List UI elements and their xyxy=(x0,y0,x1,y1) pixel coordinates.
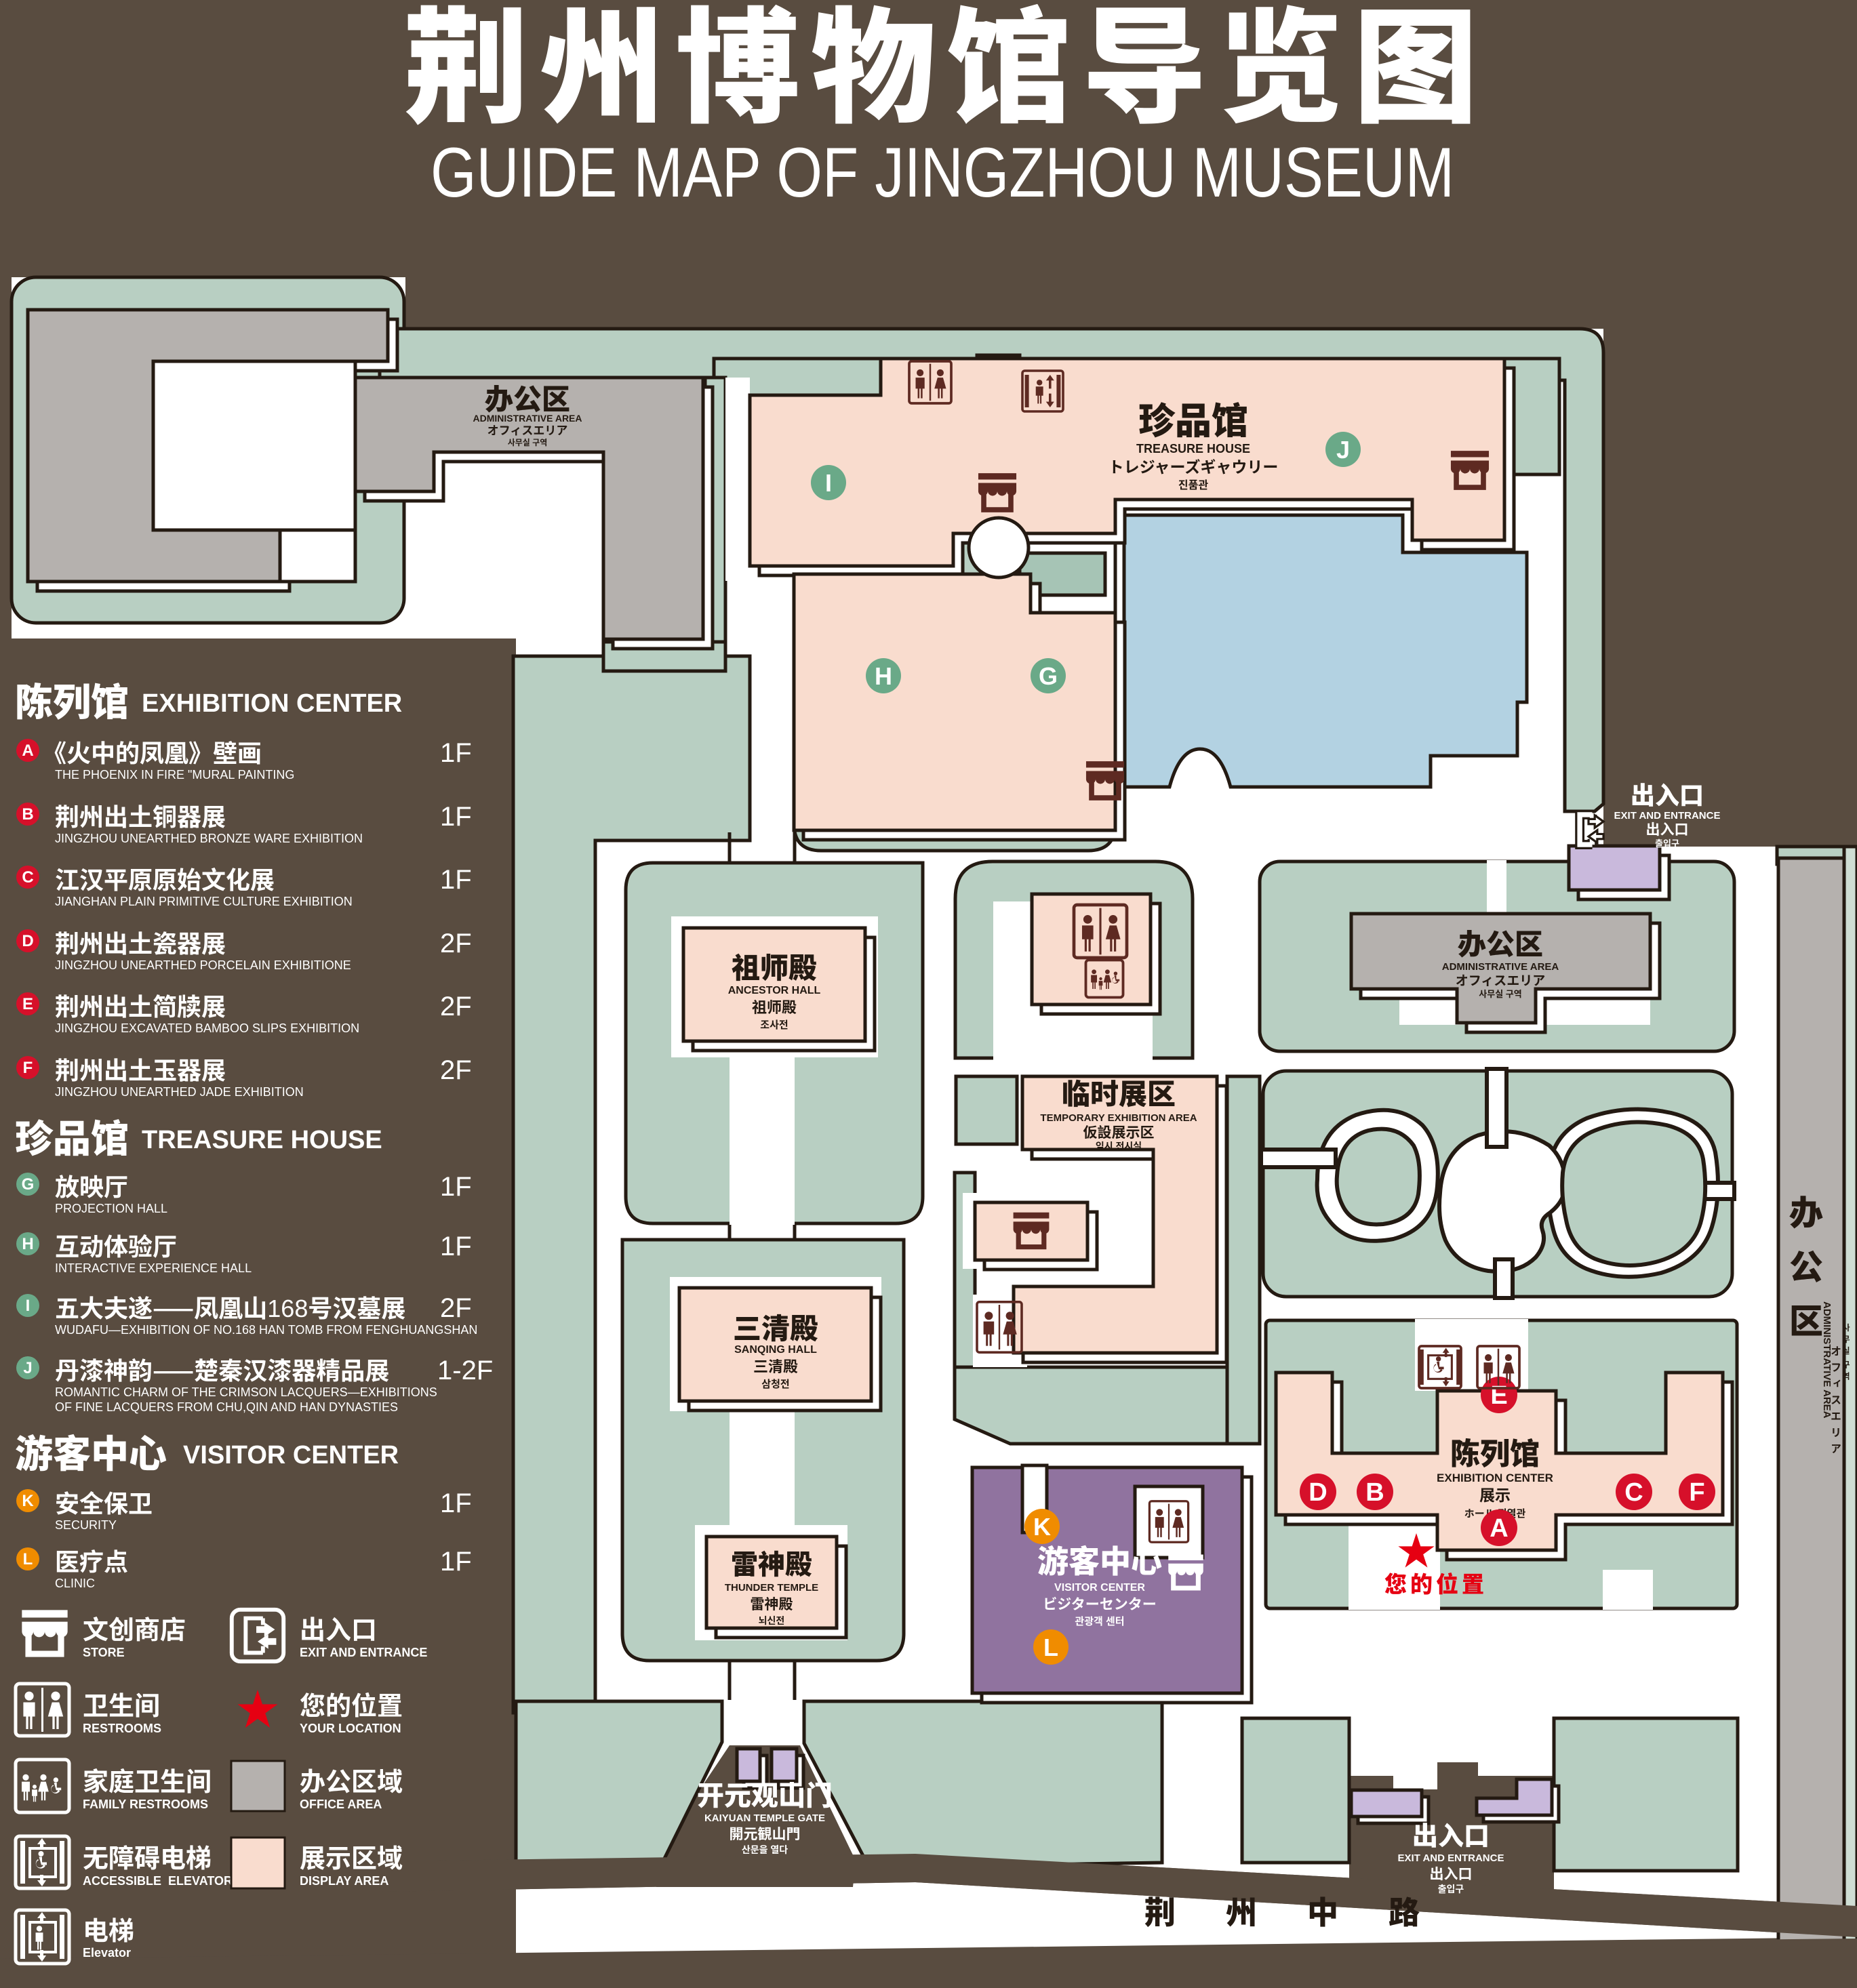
svg-text:办公区: 办公区 xyxy=(1458,922,1543,963)
svg-text:VISITOR CENTER: VISITOR CENTER xyxy=(1054,1582,1145,1594)
svg-text:卫生间: 卫生间 xyxy=(83,1685,160,1722)
svg-text:荆州出土瓷器展: 荆州出土瓷器展 xyxy=(55,925,226,960)
svg-text:SANQING HALL: SANQING HALL xyxy=(734,1344,817,1356)
svg-text:ビジターセンター: ビジターセンター xyxy=(1043,1594,1157,1614)
svg-text:陈列馆: 陈列馆 xyxy=(1450,1429,1540,1473)
svg-text:RESTROOMS: RESTROOMS xyxy=(83,1722,161,1735)
svg-text:1F: 1F xyxy=(440,738,472,768)
svg-text:G: G xyxy=(1039,662,1058,690)
svg-text:您的位置: 您的位置 xyxy=(300,1685,403,1722)
svg-text:C: C xyxy=(1624,1478,1643,1507)
svg-text:2F: 2F xyxy=(440,992,472,1021)
svg-text:GUIDE MAP OF JINGZHOU MUSEUM: GUIDE MAP OF JINGZHOU MUSEUM xyxy=(431,134,1454,212)
svg-text:A: A xyxy=(1490,1514,1508,1543)
svg-text:《火中的凤凰》壁画: 《火中的凤凰》壁画 xyxy=(42,734,262,769)
svg-text:조사전: 조사전 xyxy=(760,1017,788,1032)
svg-text:1F: 1F xyxy=(440,1232,472,1261)
svg-text:雷神殿: 雷神殿 xyxy=(731,1543,812,1582)
svg-text:游客中心: 游客中心 xyxy=(1037,1537,1162,1582)
svg-text:A: A xyxy=(22,742,33,760)
svg-text:INTERACTIVE EXPERIENCE HALL: INTERACTIVE EXPERIENCE HALL xyxy=(55,1261,252,1275)
svg-text:E: E xyxy=(22,995,33,1013)
svg-text:사무실 구역: 사무실 구역 xyxy=(1479,987,1521,1000)
svg-text:丹漆神韵——楚秦汉漆器精品展: 丹漆神韵——楚秦汉漆器精品展 xyxy=(55,1352,389,1387)
svg-text:B: B xyxy=(22,805,33,824)
svg-text:1F: 1F xyxy=(440,1547,472,1577)
svg-text:雷神殿: 雷神殿 xyxy=(751,1594,793,1614)
svg-text:FAMILY RESTROOMS: FAMILY RESTROOMS xyxy=(83,1798,208,1811)
svg-text:B: B xyxy=(1365,1478,1384,1507)
svg-text:THUNDER TEMPLE: THUNDER TEMPLE xyxy=(725,1582,818,1594)
svg-text:G: G xyxy=(22,1175,35,1194)
svg-text:开元观山门: 开元观山门 xyxy=(697,1774,833,1813)
svg-text:L: L xyxy=(1043,1634,1058,1661)
svg-text:荆州出土铜器展: 荆州出土铜器展 xyxy=(55,798,226,833)
svg-text:1F: 1F xyxy=(440,865,472,895)
svg-text:五大夫遂——凤凰山168号汉墓展: 五大夫遂——凤凰山168号汉墓展 xyxy=(55,1289,405,1324)
svg-text:WUDAFU—EXHIBITION OF NO.168 HA: WUDAFU—EXHIBITION OF NO.168 HAN TOMB FRO… xyxy=(55,1323,477,1337)
svg-text:Elevator: Elevator xyxy=(83,1946,131,1960)
svg-text:STORE: STORE xyxy=(83,1646,125,1659)
svg-text:TREASURE HOUSE: TREASURE HOUSE xyxy=(142,1126,382,1154)
svg-text:珍品馆: 珍品馆 xyxy=(15,1109,129,1164)
svg-text:VISITOR CENTER: VISITOR CENTER xyxy=(183,1441,399,1469)
svg-text:荆州中路: 荆州中路 xyxy=(1144,1888,1470,1933)
svg-text:JINGZHOU UNEARTHED JADE EXHIBI: JINGZHOU UNEARTHED JADE EXHIBITION xyxy=(55,1085,304,1099)
svg-text:EXIT AND ENTRANCE: EXIT AND ENTRANCE xyxy=(1398,1852,1504,1864)
svg-text:EXHIBITION CENTER: EXHIBITION CENTER xyxy=(142,689,402,718)
svg-text:文创商店: 文创商店 xyxy=(83,1609,186,1646)
svg-text:家庭卫生间: 家庭卫生间 xyxy=(83,1761,212,1798)
svg-text:삼청전: 삼청전 xyxy=(761,1377,789,1391)
svg-text:JINGZHOU UNEARTHED BRONZE WARE: JINGZHOU UNEARTHED BRONZE WARE EXHIBITIO… xyxy=(55,832,363,845)
svg-text:K: K xyxy=(1033,1513,1051,1541)
svg-text:珍品馆: 珍品馆 xyxy=(1138,391,1248,445)
svg-text:D: D xyxy=(1309,1478,1327,1507)
svg-text:ROMANTIC CHARM OF THE CRIMSON: ROMANTIC CHARM OF THE CRIMSON LACQUERS—E… xyxy=(55,1385,437,1399)
svg-text:J: J xyxy=(1336,436,1350,464)
svg-text:CLINIC: CLINIC xyxy=(55,1577,95,1590)
svg-text:1F: 1F xyxy=(440,1172,472,1202)
svg-text:トレジャーズギャウリー: トレジャーズギャウリー xyxy=(1109,454,1279,477)
svg-text:ACCESSIBLE ELEVATOR: ACCESSIBLE ELEVATOR xyxy=(83,1874,233,1888)
svg-text:사무실 구역: 사무실 구역 xyxy=(508,437,548,448)
svg-text:F: F xyxy=(23,1059,33,1077)
svg-text:관광객 센터: 관광객 센터 xyxy=(1075,1614,1124,1628)
svg-text:出入口: 出入口 xyxy=(300,1609,377,1646)
svg-text:祖师殿: 祖师殿 xyxy=(732,946,817,987)
svg-text:办公区域: 办公区域 xyxy=(300,1761,403,1798)
svg-text:陈列馆: 陈列馆 xyxy=(15,672,129,727)
svg-text:游客中心: 游客中心 xyxy=(15,1424,167,1479)
svg-text:OFFICE AREA: OFFICE AREA xyxy=(300,1798,382,1811)
svg-text:H: H xyxy=(875,662,892,690)
svg-text:I: I xyxy=(825,469,832,497)
svg-text:뇌신전: 뇌신전 xyxy=(759,1614,785,1627)
svg-text:荆州出土简牍展: 荆州出土简牍展 xyxy=(55,988,226,1023)
svg-text:您的位置: 您的位置 xyxy=(1384,1566,1487,1599)
svg-text:D: D xyxy=(22,932,33,950)
svg-text:办公区: 办公区 xyxy=(485,377,570,418)
svg-text:2F: 2F xyxy=(440,929,472,958)
svg-text:オフィスエリア: オフィスエリア xyxy=(1456,971,1546,989)
svg-text:YOUR LOCATION: YOUR LOCATION xyxy=(300,1722,401,1735)
svg-text:放映厅: 放映厅 xyxy=(55,1168,128,1203)
svg-text:THE PHOENIX IN FIRE "MURAL PAI: THE PHOENIX IN FIRE "MURAL PAINTING xyxy=(55,768,294,782)
svg-text:TREASURE HOUSE: TREASURE HOUSE xyxy=(1136,442,1250,455)
svg-text:出入口: 出入口 xyxy=(1430,1863,1473,1884)
svg-text:DISPLAY AREA: DISPLAY AREA xyxy=(300,1874,388,1888)
svg-text:互动体验厅: 互动体验厅 xyxy=(55,1228,177,1263)
svg-text:三清殿: 三清殿 xyxy=(753,1355,798,1377)
svg-text:산문을 열다: 산문을 열다 xyxy=(742,1843,788,1857)
svg-text:出入口: 出入口 xyxy=(1631,776,1704,811)
svg-text:PROJECTION HALL: PROJECTION HALL xyxy=(55,1202,167,1215)
svg-text:사무실 구역: 사무실 구역 xyxy=(1841,1322,1852,1381)
svg-text:医疗点: 医疗点 xyxy=(55,1543,128,1578)
svg-text:JINGZHOU UNEARTHED PORCELAIN E: JINGZHOU UNEARTHED PORCELAIN EXHIBITIONE xyxy=(55,958,351,972)
svg-text:出入口: 出入口 xyxy=(1412,1815,1490,1852)
svg-text:L: L xyxy=(23,1550,33,1568)
svg-text:临时展区: 临时展区 xyxy=(1062,1072,1176,1113)
svg-text:C: C xyxy=(22,868,33,887)
svg-text:K: K xyxy=(22,1492,34,1510)
svg-text:E: E xyxy=(1490,1381,1507,1410)
svg-text:祖师殿: 祖师殿 xyxy=(752,996,797,1017)
svg-text:荆州博物馆导览图: 荆州博物馆导览图 xyxy=(404,0,1489,148)
svg-text:출입구: 출입구 xyxy=(1655,836,1679,849)
svg-text:F: F xyxy=(1689,1478,1704,1507)
svg-text:展示区域: 展示区域 xyxy=(300,1838,403,1875)
svg-text:荆州出土玉器展: 荆州出土玉器展 xyxy=(55,1051,226,1087)
svg-text:电梯: 电梯 xyxy=(83,1910,134,1947)
svg-text:三清殿: 三清殿 xyxy=(733,1306,818,1347)
svg-text:임시 전시실: 임시 전시실 xyxy=(1096,1139,1142,1153)
svg-text:ANCESTOR HALL: ANCESTOR HALL xyxy=(728,985,821,996)
svg-text:2F: 2F xyxy=(440,1055,472,1085)
svg-text:開元観山門: 開元観山門 xyxy=(730,1823,801,1844)
svg-text:オフィスエリア: オフィスエリア xyxy=(487,421,568,438)
svg-text:OF FINE LACQUERS FROM CHU,QIN: OF FINE LACQUERS FROM CHU,QIN AND HAN DY… xyxy=(55,1400,398,1414)
svg-text:H: H xyxy=(22,1235,33,1253)
svg-text:I: I xyxy=(26,1297,31,1315)
svg-text:EXIT AND ENTRANCE: EXIT AND ENTRANCE xyxy=(300,1646,427,1659)
svg-text:无障碍电梯: 无障碍电梯 xyxy=(83,1838,212,1875)
svg-text:진품관: 진품관 xyxy=(1178,476,1208,492)
svg-text:1-2F: 1-2F xyxy=(437,1356,493,1385)
svg-text:JINGZHOU EXCAVATED BAMBOO SLIP: JINGZHOU EXCAVATED BAMBOO SLIPS EXHIBITI… xyxy=(55,1021,359,1035)
svg-text:展示: 展示 xyxy=(1479,1482,1511,1505)
svg-text:J: J xyxy=(23,1359,32,1377)
svg-text:1F: 1F xyxy=(440,1488,472,1518)
svg-text:SECURITY: SECURITY xyxy=(55,1518,117,1532)
svg-text:KAIYUAN TEMPLE GATE: KAIYUAN TEMPLE GATE xyxy=(704,1812,825,1824)
svg-text:江汉平原原始文化展: 江汉平原原始文化展 xyxy=(55,861,275,896)
svg-text:2F: 2F xyxy=(440,1293,472,1323)
svg-text:1F: 1F xyxy=(440,802,472,832)
svg-text:JIANGHAN PLAIN PRIMITIVE CULTU: JIANGHAN PLAIN PRIMITIVE CULTURE EXHIBIT… xyxy=(55,895,353,908)
svg-text:安全保卫: 安全保卫 xyxy=(55,1484,153,1520)
